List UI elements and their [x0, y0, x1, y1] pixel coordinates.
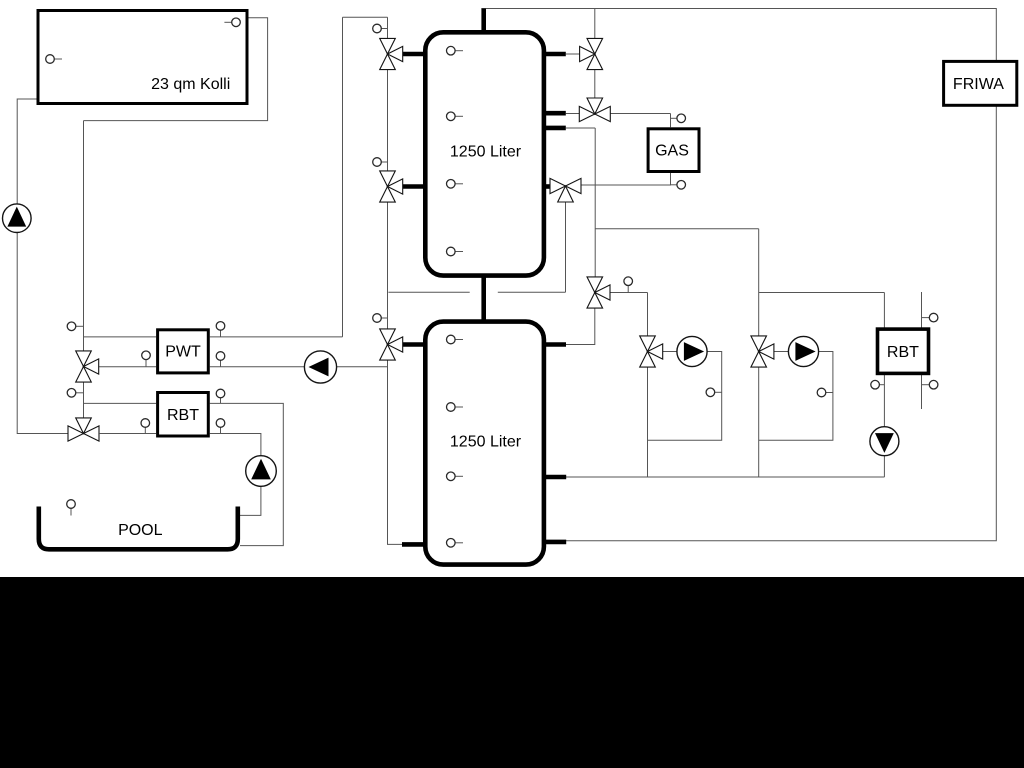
svg-text:1250 Liter: 1250 Liter — [450, 433, 522, 450]
svg-text:PWT: PWT — [165, 344, 201, 361]
svg-text:1250 Liter: 1250 Liter — [450, 143, 522, 160]
svg-text:POOL: POOL — [118, 522, 163, 539]
svg-text:RBT: RBT — [167, 407, 199, 424]
svg-text:RBT: RBT — [887, 344, 919, 361]
svg-text:GAS: GAS — [655, 142, 689, 159]
svg-text:FRIWA: FRIWA — [953, 76, 1004, 93]
svg-text:23 qm Kolli: 23 qm Kolli — [151, 76, 230, 93]
